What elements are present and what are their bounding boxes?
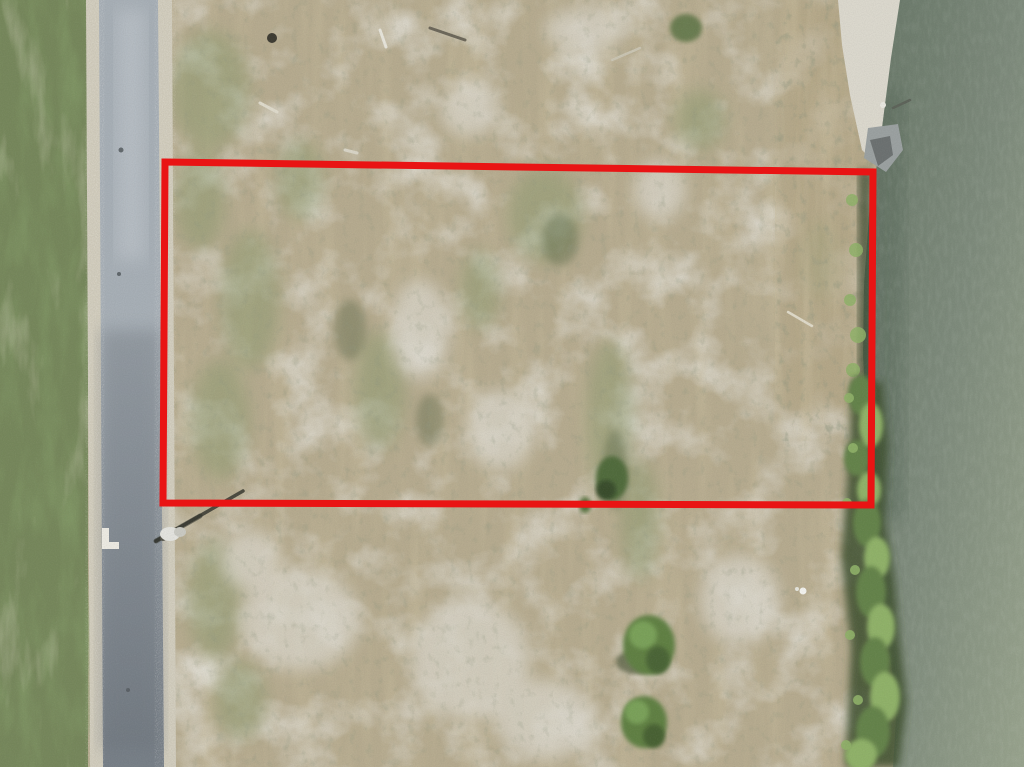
aerial-photo: [0, 0, 1024, 767]
aerial-photo-canvas: [0, 0, 1024, 767]
